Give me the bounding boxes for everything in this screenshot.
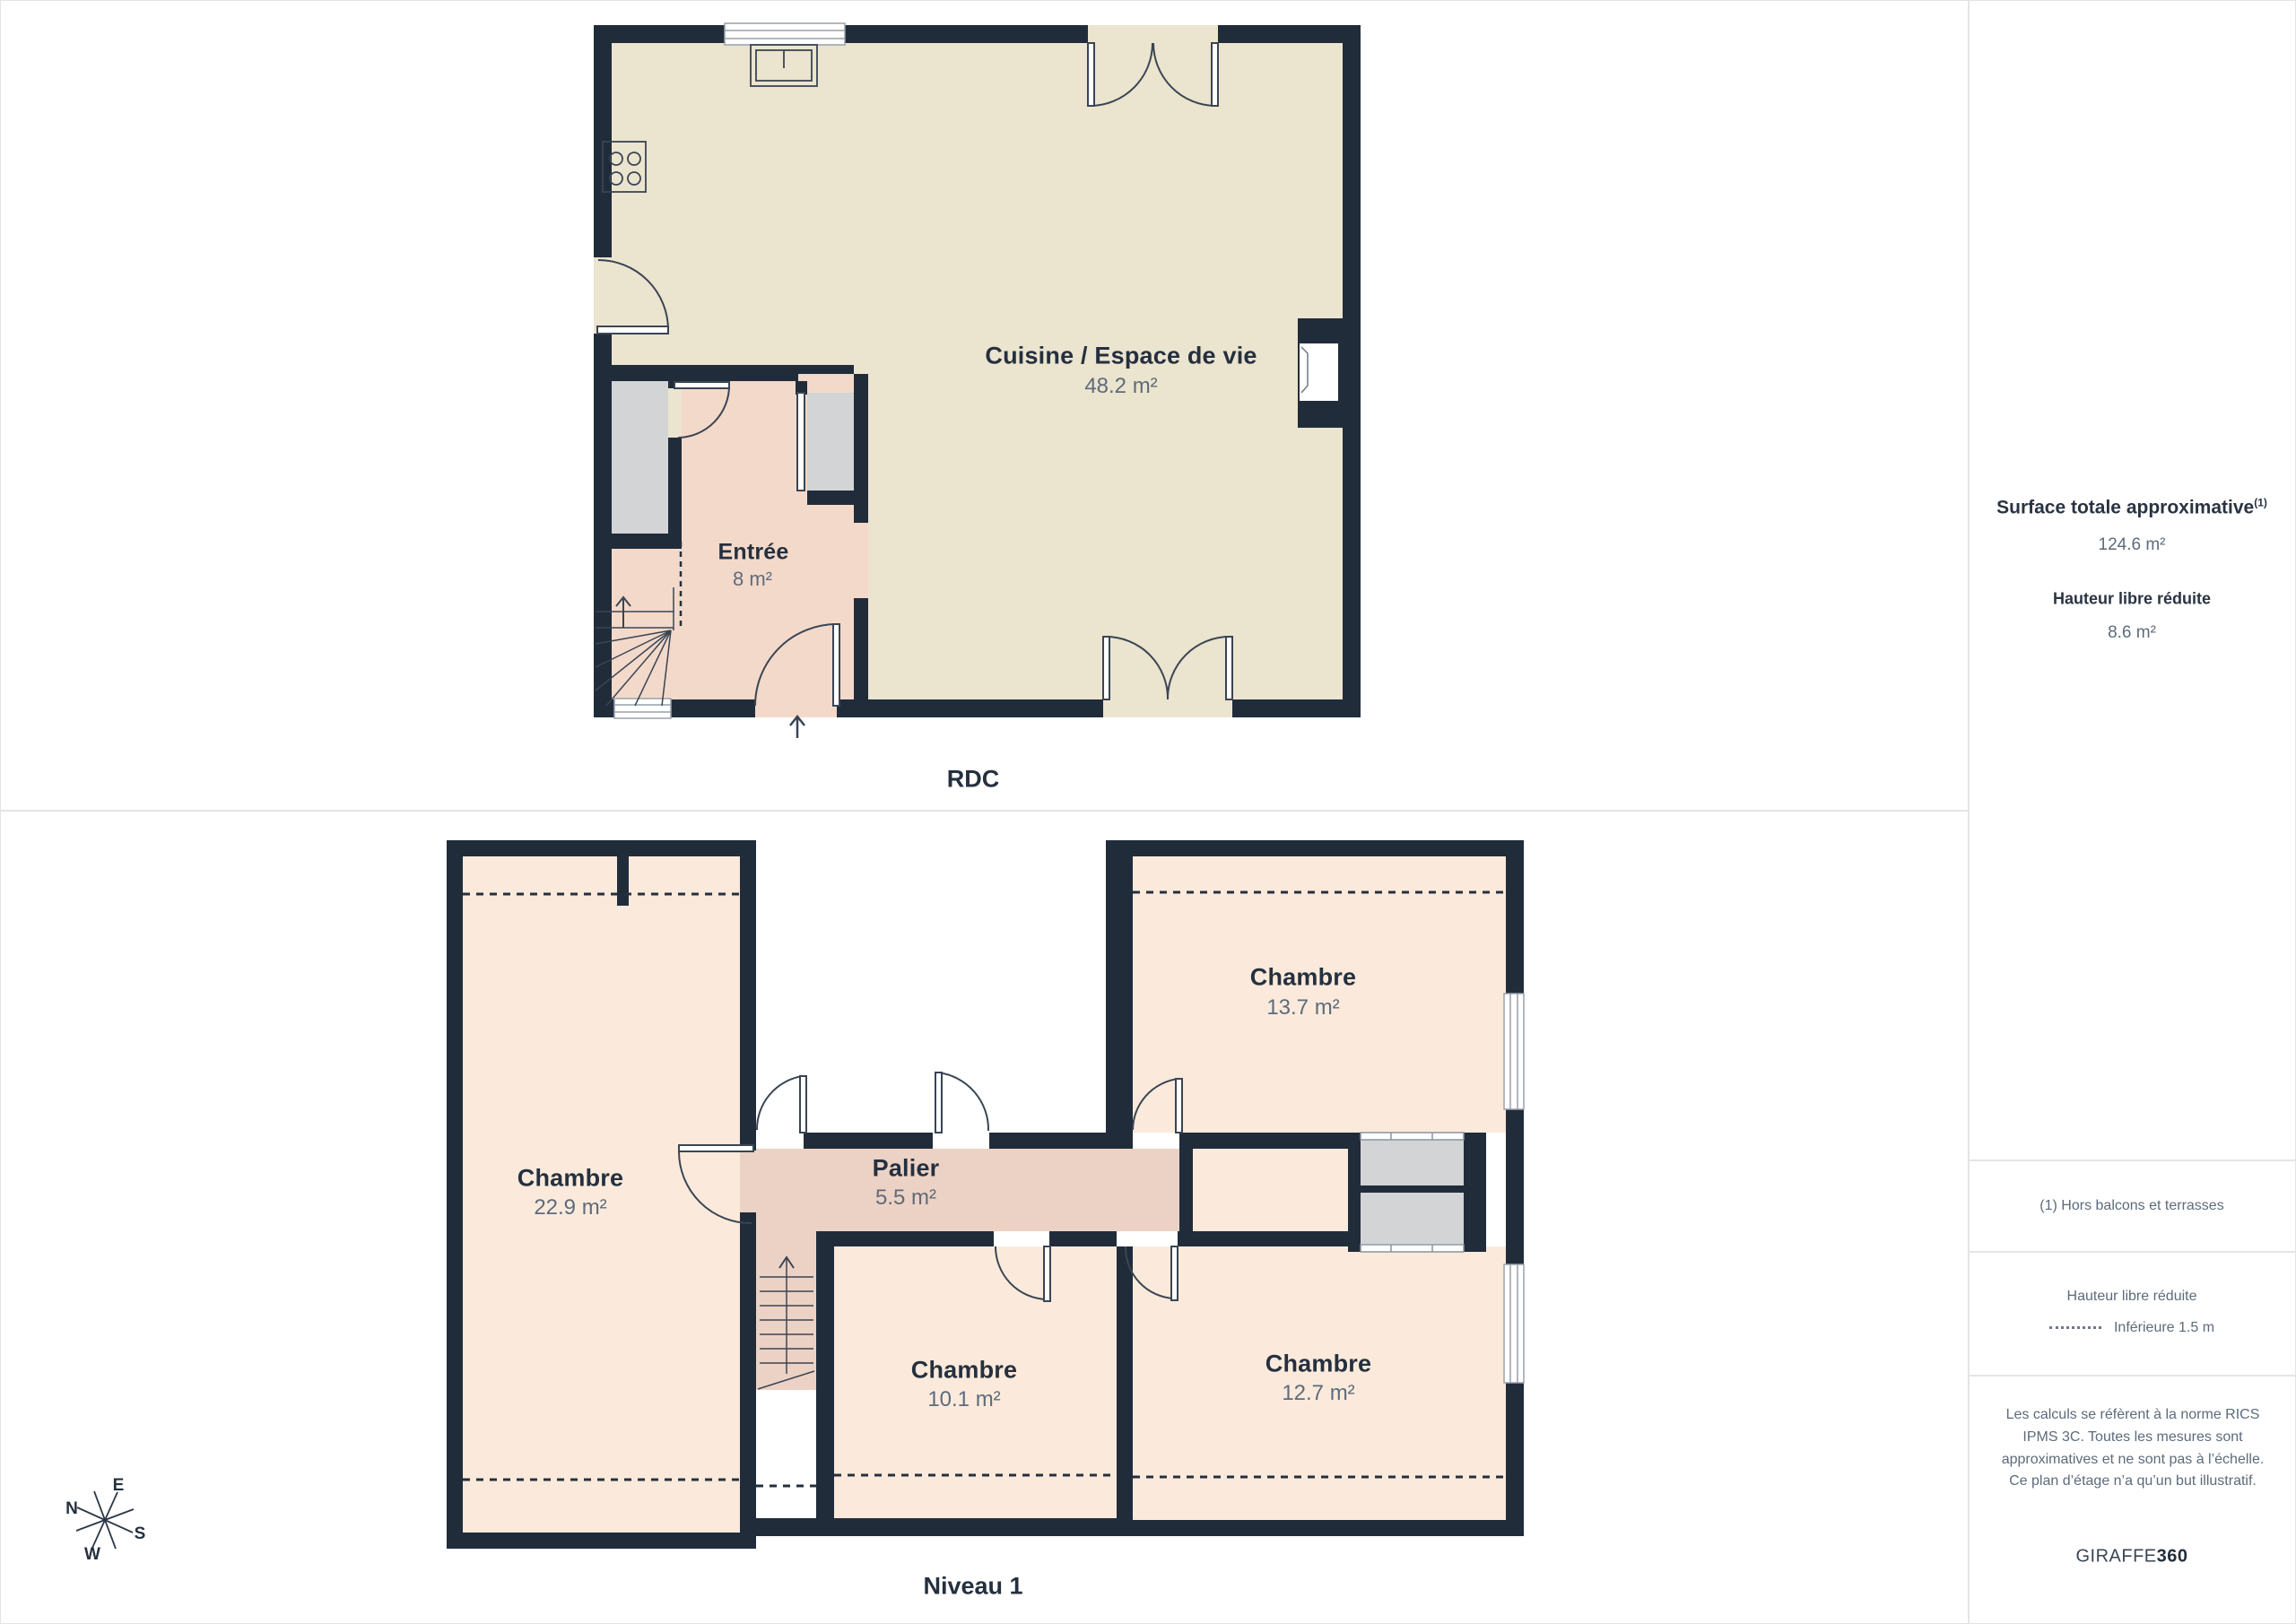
door <box>679 1145 753 1223</box>
floor-label-niveau1: Niveau 1 <box>923 1573 1022 1601</box>
door <box>1133 1079 1182 1133</box>
compass-w: W <box>84 1545 100 1565</box>
compass-icon <box>76 1491 134 1549</box>
sliding-door <box>1361 1133 1464 1252</box>
room-area-palier: 5.5 m² <box>875 1185 936 1211</box>
compass-n: N <box>65 1499 78 1519</box>
sidebar-total-title: Surface totale approximative(1) <box>1996 497 2267 519</box>
room-label-cuisine: Cuisine / Espace de vie <box>985 343 1257 370</box>
room-label-palier: Palier <box>873 1155 940 1183</box>
brand-logo: GIRAFFE360 <box>2075 1547 2187 1568</box>
sidebar-footnote: (1) Hors balcons et terrasses <box>2039 1198 2223 1214</box>
room-area-chambre-ne: 13.7 m² <box>1266 995 1339 1020</box>
divider-sidebar-1 <box>1968 1159 2296 1161</box>
door <box>1126 1246 1178 1300</box>
stairs-niveau1 <box>758 1257 814 1389</box>
room-area-cuisine: 48.2 m² <box>1084 374 1157 399</box>
legend-reduced-height: Inférieure 1.5 m <box>1968 1320 2296 1336</box>
room-label-chambre-ne: Chambre <box>1250 964 1356 992</box>
sidebar-reduced-title: Hauteur libre réduite <box>2053 590 2211 609</box>
sidebar-reduced-value: 8.6 m² <box>2108 623 2156 643</box>
entrance-door <box>755 624 839 706</box>
sidebar-disclaimer: Les calculs se réfèrent à la norme RICS … <box>1993 1404 2273 1493</box>
divider-sidebar-3 <box>1968 1375 2296 1376</box>
double-door <box>1103 637 1232 699</box>
sidebar-total-footref: (1) <box>2254 497 2267 509</box>
room-area-chambre-se: 12.7 m² <box>1282 1381 1354 1406</box>
brand-name: GIRAFFE <box>2075 1547 2156 1567</box>
sidebar-total-title-text: Surface totale approximative <box>1996 498 2254 518</box>
room-label-entree: Entrée <box>717 540 788 566</box>
double-door <box>1088 43 1218 106</box>
compass-s: S <box>135 1524 146 1544</box>
divider-floors <box>0 810 1968 812</box>
floorplan-page: Cuisine / Espace de vie 48.2 m² Entrée 8… <box>0 0 2296 1624</box>
floor-label-rdc: RDC <box>947 766 1000 794</box>
door <box>757 1076 806 1133</box>
compass-e: E <box>113 1476 125 1496</box>
stairs-rdc <box>596 587 674 706</box>
door <box>597 260 668 334</box>
legend-title: Hauteur libre réduite <box>2067 1289 2197 1305</box>
room-label-chambre-grande: Chambre <box>517 1165 623 1193</box>
sidebar-total-value: 124.6 m² <box>2099 535 2166 555</box>
chimney-niche <box>1300 343 1338 401</box>
closet-door <box>674 382 804 491</box>
room-area-chambre-sud: 10.1 m² <box>927 1387 1000 1412</box>
door <box>996 1246 1050 1301</box>
door <box>935 1073 988 1133</box>
brand-suffix: 360 <box>2157 1547 2188 1567</box>
window <box>1504 994 1524 1383</box>
window <box>614 23 845 718</box>
room-label-chambre-se: Chambre <box>1265 1350 1371 1378</box>
sink-unit-icon <box>751 45 817 86</box>
legend-item-text: Inférieure 1.5 m <box>2114 1320 2214 1335</box>
divider-sidebar-2 <box>1968 1251 2296 1253</box>
divider-vertical <box>1968 0 1970 1624</box>
room-label-chambre-sud: Chambre <box>911 1357 1017 1385</box>
stove-icon <box>603 142 646 192</box>
room-area-entree: 8 m² <box>733 568 772 591</box>
entrance-arrow-icon <box>790 716 804 738</box>
plan-linework <box>0 0 2296 1624</box>
room-area-chambre-grande: 22.9 m² <box>534 1195 606 1220</box>
reduced-height-dash-icon <box>2049 1326 2101 1329</box>
